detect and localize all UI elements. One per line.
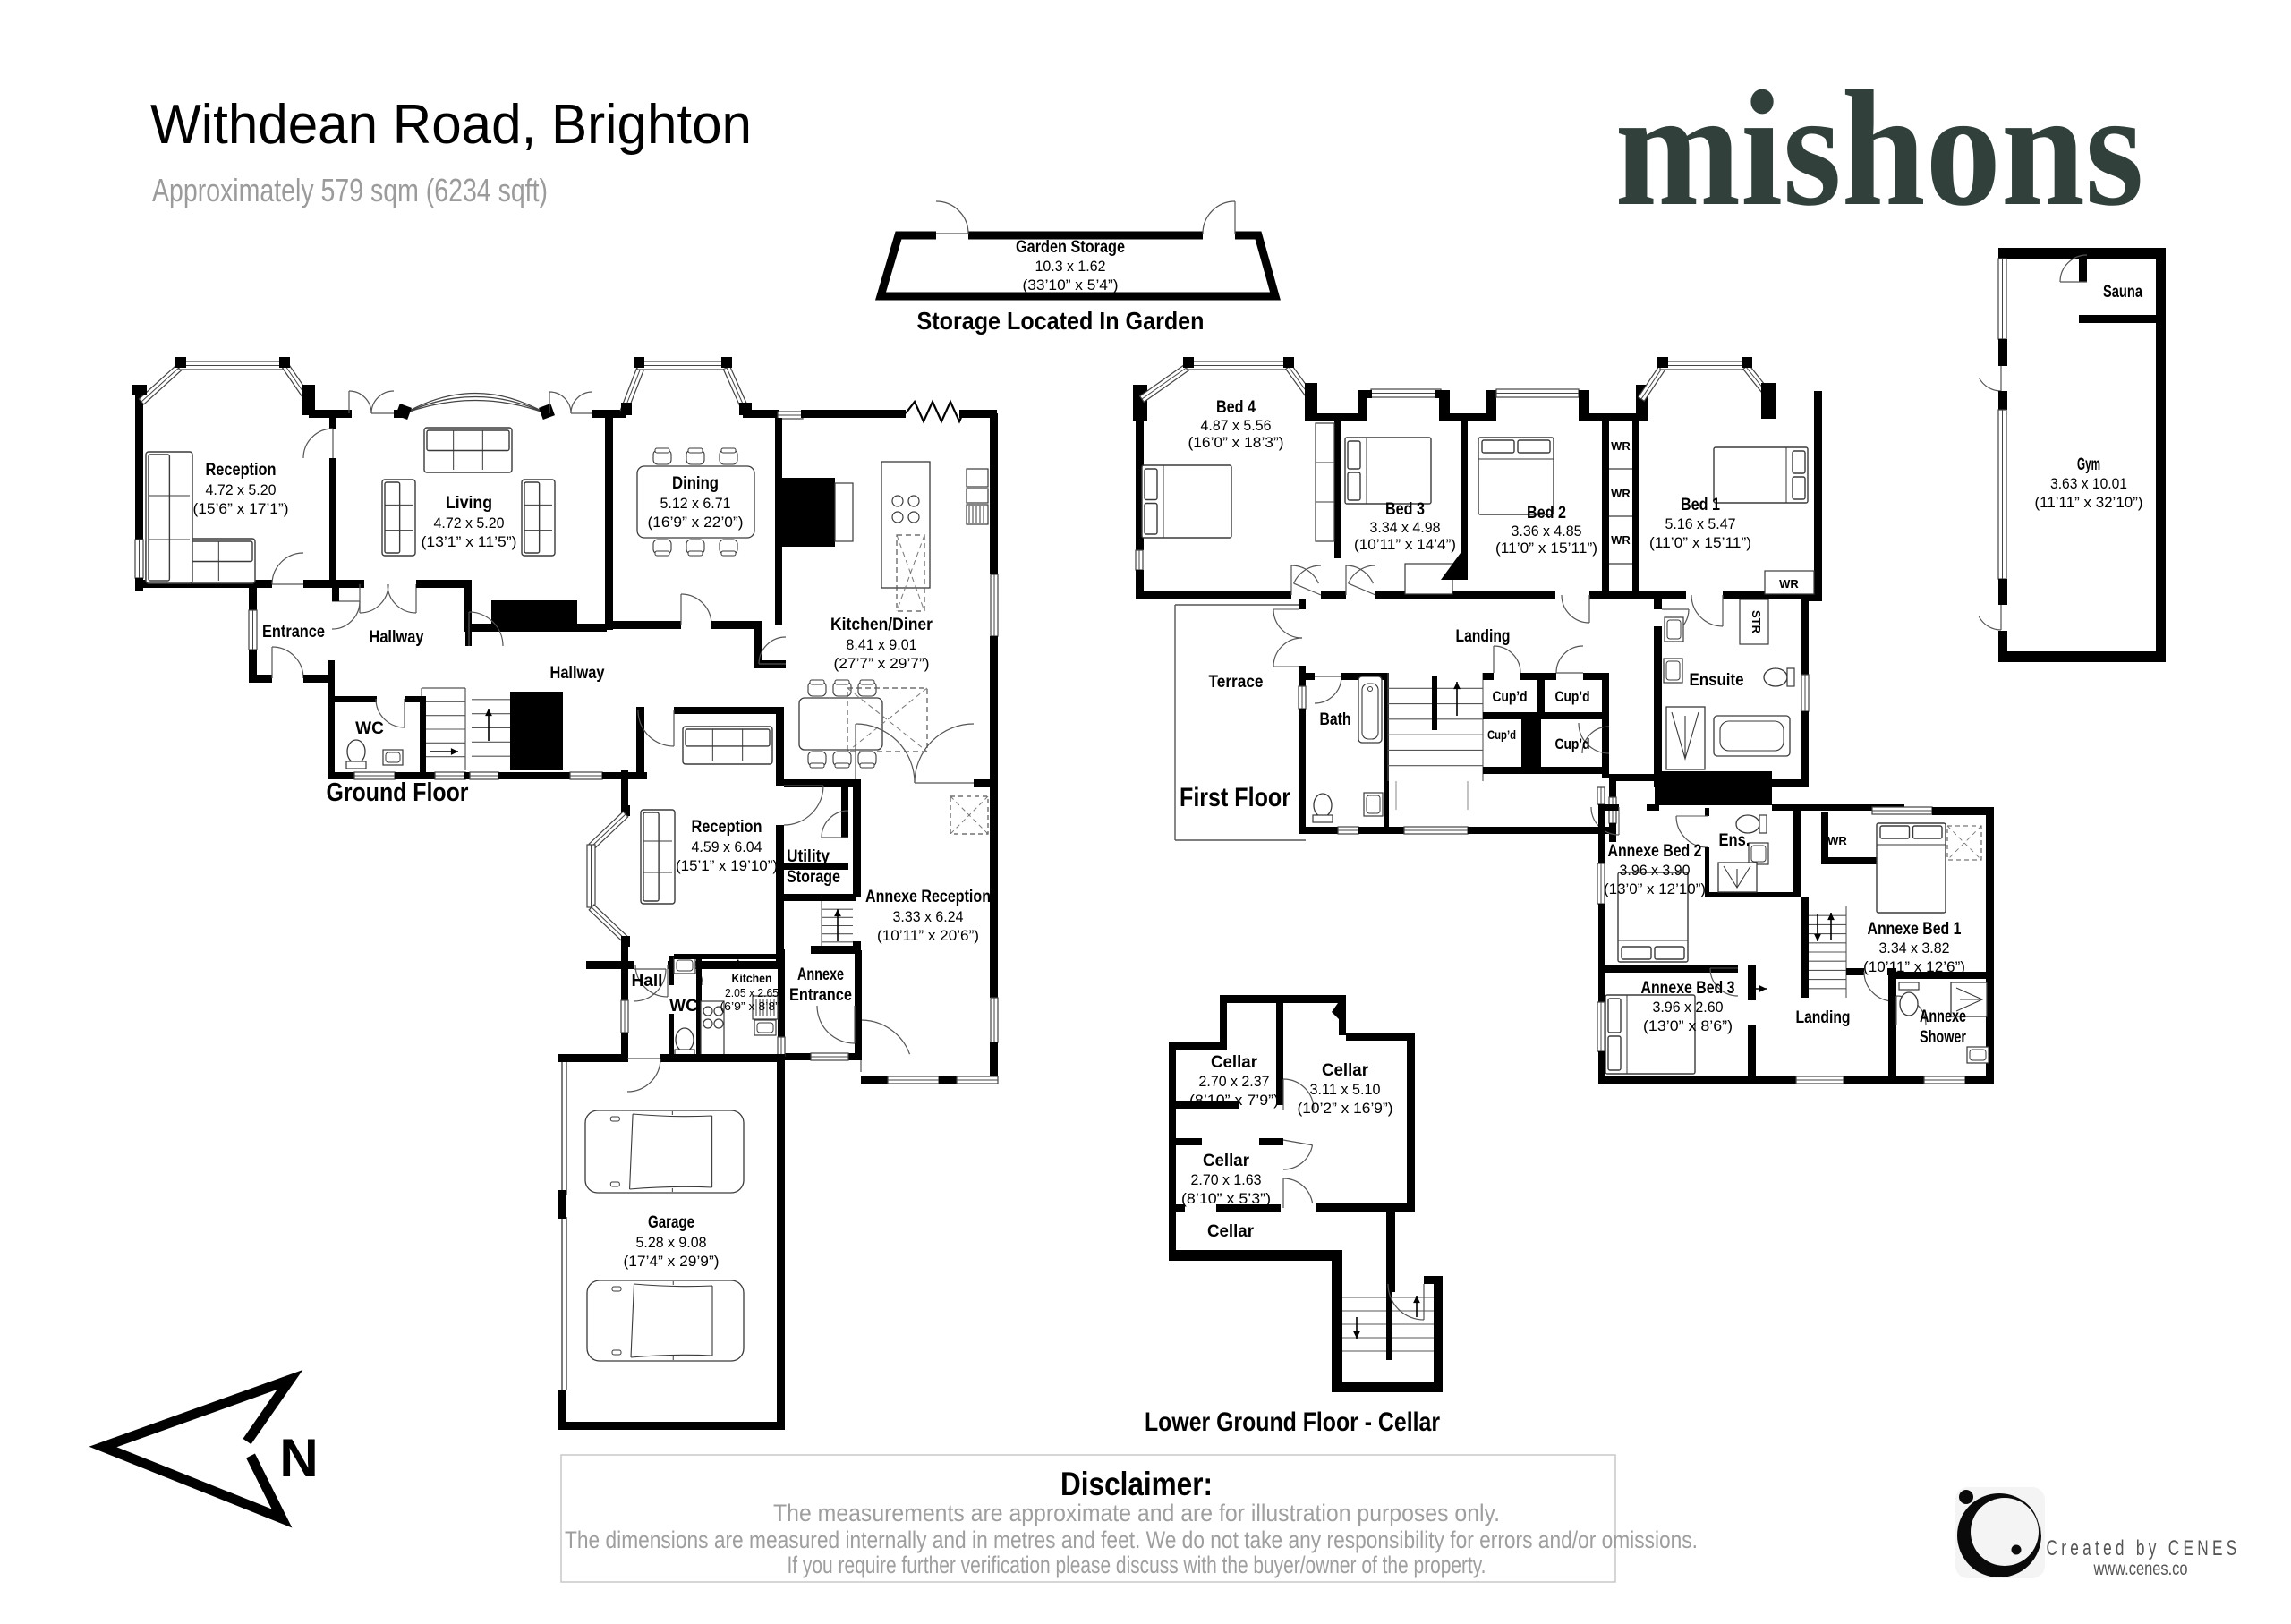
svg-text:2.70 x 2.37: 2.70 x 2.37 xyxy=(1199,1073,1270,1090)
svg-text:Cup’d: Cup’d xyxy=(1555,735,1590,752)
svg-text:The measurements are approxima: The measurements are approximate and are… xyxy=(773,1500,1500,1526)
svg-text:4.72 x 5.20: 4.72 x 5.20 xyxy=(206,481,277,498)
svg-text:Annexe Reception: Annexe Reception xyxy=(865,888,991,906)
svg-text:WC: WC xyxy=(355,719,384,738)
svg-text:(13’0” x 8’6”): (13’0” x 8’6”) xyxy=(1643,1017,1733,1034)
svg-text:(17’4” x 29’9”): (17’4” x 29’9”) xyxy=(624,1253,720,1270)
svg-text:(13’0” x 12’10”): (13’0” x 12’10”) xyxy=(1604,880,1706,897)
svg-text:3.63 x 10.01: 3.63 x 10.01 xyxy=(2050,475,2127,492)
svg-text:Cup’d: Cup’d xyxy=(1487,727,1516,742)
svg-text:3.96 x 3.90: 3.96 x 3.90 xyxy=(1620,862,1691,879)
svg-text:Entrance: Entrance xyxy=(262,623,325,642)
svg-text:Bed 4: Bed 4 xyxy=(1216,398,1256,417)
svg-text:Bath: Bath xyxy=(1320,710,1351,729)
svg-text:Annexe: Annexe xyxy=(735,957,770,971)
svg-text:(11’11” x 32’10”): (11’11” x 32’10”) xyxy=(2035,494,2143,511)
svg-text:Sauna: Sauna xyxy=(2103,283,2142,302)
svg-text:(10’11” x 12’6”): (10’11” x 12’6”) xyxy=(1863,958,1965,975)
svg-text:WR: WR xyxy=(1611,439,1631,453)
svg-text:3.11 x 5.10: 3.11 x 5.10 xyxy=(1310,1081,1381,1098)
svg-text:Ensuite: Ensuite xyxy=(1690,671,1744,690)
svg-text:Utility: Utility xyxy=(787,847,830,866)
svg-text:Annexe Bed 2: Annexe Bed 2 xyxy=(1608,842,1702,861)
svg-text:Cellar: Cellar xyxy=(1211,1053,1258,1072)
svg-text:Annexe Bed 3: Annexe Bed 3 xyxy=(1641,979,1735,998)
svg-text:Hallway: Hallway xyxy=(550,664,605,683)
svg-text:The dimensions are measured in: The dimensions are measured internally a… xyxy=(565,1526,1698,1553)
svg-text:Annexe: Annexe xyxy=(1920,1008,1966,1026)
svg-text:Bed 2: Bed 2 xyxy=(1527,504,1566,523)
svg-text:3.96 x 2.60: 3.96 x 2.60 xyxy=(1653,999,1724,1016)
svg-text:(27’7” x 29’7”): (27’7” x 29’7”) xyxy=(834,655,930,672)
svg-text:Kitchen: Kitchen xyxy=(732,971,772,985)
svg-text:(33’10” x 5’4”): (33’10” x 5’4”) xyxy=(1023,276,1119,293)
svg-text:Withdean Road, Brighton: Withdean Road, Brighton xyxy=(150,94,752,156)
svg-text:Hallway: Hallway xyxy=(370,628,424,647)
svg-text:Lower Ground Floor - Cellar: Lower Ground Floor - Cellar xyxy=(1145,1407,1440,1437)
svg-text:Entrance: Entrance xyxy=(789,986,852,1005)
svg-text:(10’11” x 20’6”): (10’11” x 20’6”) xyxy=(877,927,979,944)
svg-text:Storage Located In Garden: Storage Located In Garden xyxy=(917,307,1205,335)
svg-text:(15’1” x 19’10”): (15’1” x 19’10”) xyxy=(676,857,778,874)
svg-text:(8’10” x 7’9”): (8’10” x 7’9”) xyxy=(1189,1092,1279,1109)
svg-text:WC: WC xyxy=(669,997,698,1016)
svg-text:Annexe: Annexe xyxy=(797,965,844,984)
svg-text:(15’6” x 17’1”): (15’6” x 17’1”) xyxy=(193,500,289,517)
svg-text:Cup’d: Cup’d xyxy=(1493,688,1528,705)
svg-text:Shower: Shower xyxy=(1920,1028,1966,1047)
svg-text:Terrace: Terrace xyxy=(1209,673,1264,692)
svg-text:Landing: Landing xyxy=(1796,1008,1851,1027)
svg-text:Cellar: Cellar xyxy=(1203,1152,1250,1170)
svg-text:Bed 3: Bed 3 xyxy=(1385,500,1425,519)
svg-text:5.12 x 6.71: 5.12 x 6.71 xyxy=(660,495,731,512)
svg-text:5.16 x 5.47: 5.16 x 5.47 xyxy=(1665,515,1736,532)
svg-text:Disclaimer:: Disclaimer: xyxy=(1060,1466,1213,1502)
svg-text:2.70 x 1.63: 2.70 x 1.63 xyxy=(1191,1171,1262,1188)
svg-text:Garden Storage: Garden Storage xyxy=(1016,238,1125,257)
svg-text:Approximately 579 sqm (6234 sq: Approximately 579 sqm (6234 sqft) xyxy=(152,172,548,208)
svg-text:WR: WR xyxy=(1611,487,1631,500)
svg-text:Ens.: Ens. xyxy=(1719,831,1750,850)
svg-text:Cup’d: Cup’d xyxy=(1555,688,1590,705)
svg-text:Garage: Garage xyxy=(648,1213,694,1232)
svg-text:3.36 x 4.85: 3.36 x 4.85 xyxy=(1512,523,1582,540)
svg-text:3.33 x 6.24: 3.33 x 6.24 xyxy=(893,908,964,925)
svg-text:mishons: mishons xyxy=(1615,57,2144,241)
svg-text:(11’0” x 15’11”): (11’0” x 15’11”) xyxy=(1649,534,1751,551)
svg-text:Ground Floor: Ground Floor xyxy=(327,778,469,807)
svg-text:Storage: Storage xyxy=(787,868,840,887)
svg-text:Reception: Reception xyxy=(692,818,762,837)
svg-text:Created by CENES: Created by CENES xyxy=(2047,1536,2241,1560)
svg-text:3.34 x 4.98: 3.34 x 4.98 xyxy=(1370,519,1441,536)
svg-text:Annexe Bed 1: Annexe Bed 1 xyxy=(1868,920,1962,939)
svg-text:(13’1” x 11’5”): (13’1” x 11’5”) xyxy=(422,533,517,550)
svg-text:10.3 x 1.62: 10.3 x 1.62 xyxy=(1035,258,1106,275)
svg-text:Kitchen/Diner: Kitchen/Diner xyxy=(830,616,933,634)
svg-text:4.87 x 5.56: 4.87 x 5.56 xyxy=(1201,417,1272,434)
svg-text:2.05 x 2.65: 2.05 x 2.65 xyxy=(725,986,779,999)
svg-text:Living: Living xyxy=(446,494,492,513)
svg-text:Gym: Gym xyxy=(2077,455,2100,474)
svg-text:8.41 x 9.01: 8.41 x 9.01 xyxy=(847,636,917,653)
svg-text:Hall: Hall xyxy=(632,972,663,991)
svg-text:Cellar: Cellar xyxy=(1322,1061,1369,1080)
svg-text:Dining: Dining xyxy=(672,474,719,493)
svg-text:(16’9” x 22’0”): (16’9” x 22’0”) xyxy=(648,514,744,531)
svg-text:4.59 x 6.04: 4.59 x 6.04 xyxy=(692,838,762,855)
svg-text:(6’9” x 8’8”): (6’9” x 8’8”) xyxy=(720,999,784,1013)
svg-text:N: N xyxy=(279,1428,318,1488)
svg-text:WR: WR xyxy=(1779,577,1799,591)
svg-text:Cellar: Cellar xyxy=(1207,1222,1255,1241)
svg-text:4.72 x 5.20: 4.72 x 5.20 xyxy=(434,514,505,531)
svg-text:Bed 1: Bed 1 xyxy=(1681,496,1720,514)
svg-text:WR: WR xyxy=(1827,834,1847,847)
svg-text:(10’11” x 14’4”): (10’11” x 14’4”) xyxy=(1354,536,1456,553)
svg-text:WR: WR xyxy=(1611,533,1631,547)
svg-text:3.34 x 3.82: 3.34 x 3.82 xyxy=(1879,940,1950,957)
svg-text:STR: STR xyxy=(1750,610,1763,634)
svg-text:(10’2” x 16’9”): (10’2” x 16’9”) xyxy=(1298,1100,1393,1117)
svg-text:Landing: Landing xyxy=(1456,627,1511,646)
svg-text:www.cenes.co: www.cenes.co xyxy=(2093,1559,2188,1579)
svg-text:5.28 x 9.08: 5.28 x 9.08 xyxy=(636,1234,707,1251)
svg-text:First Floor: First Floor xyxy=(1180,783,1290,812)
svg-text:If you require further verific: If you require further verification plea… xyxy=(788,1552,1486,1578)
svg-text:(11’0” x 15’11”): (11’0” x 15’11”) xyxy=(1495,540,1597,557)
svg-text:(8’10” x 5’3”): (8’10” x 5’3”) xyxy=(1181,1190,1271,1207)
svg-text:(16’0” x 18’3”): (16’0” x 18’3”) xyxy=(1188,434,1284,451)
svg-text:Reception: Reception xyxy=(206,461,277,480)
